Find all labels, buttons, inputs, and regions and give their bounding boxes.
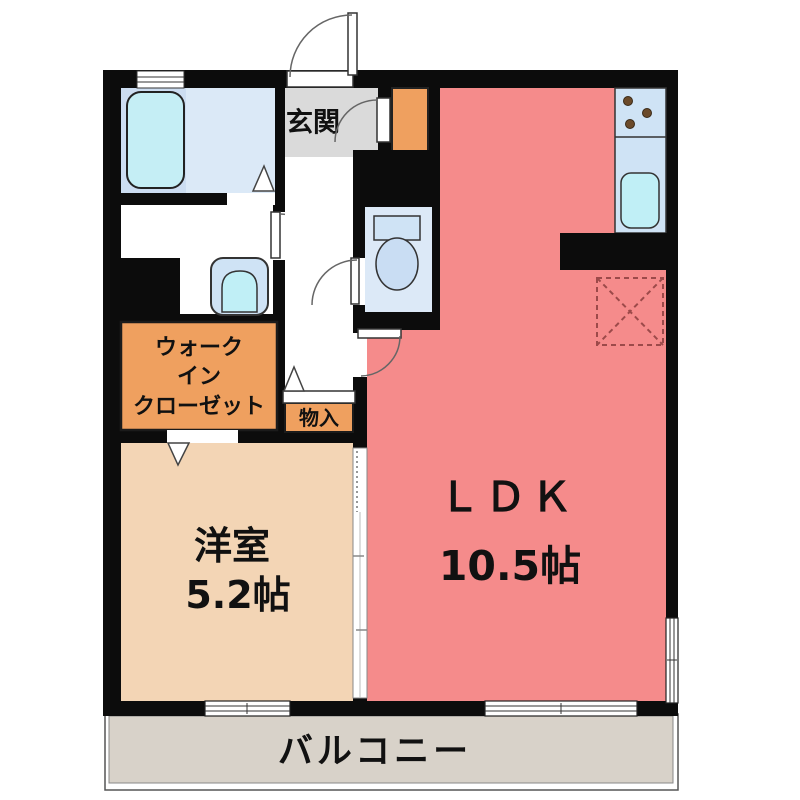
ldk-label: ＬＤＫ <box>439 473 577 521</box>
wic-doorway <box>167 430 238 443</box>
bedroom-window <box>205 701 290 716</box>
wic-label-line1: ウォーク <box>155 336 243 361</box>
toilet-door-icon <box>351 258 359 304</box>
ldk-doorway <box>353 333 367 377</box>
ldk-door-icon <box>358 329 401 338</box>
pipe-space <box>121 258 180 314</box>
ldk-window <box>485 701 637 716</box>
toilet-bowl-icon <box>376 238 418 290</box>
washbasin-bowl-icon <box>222 271 257 312</box>
storage-label: 物入 <box>299 406 339 430</box>
washroom-door-icon <box>271 212 280 258</box>
entrance-threshold <box>287 71 353 87</box>
entrance-door-icon <box>348 13 357 75</box>
kitchen-sink-icon <box>621 173 659 228</box>
stove-burner-icon <box>643 109 652 118</box>
kitchen-partition-wall <box>560 233 678 270</box>
floor-plan-page: バルコニー 玄関 ＬＤＫ 10.5帖 <box>0 0 800 800</box>
balcony-label: バルコニー <box>278 732 472 772</box>
stove-burner-icon <box>626 120 635 129</box>
bedroom-label: 洋室 <box>194 524 270 568</box>
floor-plan: バルコニー 玄関 ＬＤＫ 10.5帖 <box>0 0 800 800</box>
bedroom-size-label: 5.2帖 <box>185 573 290 617</box>
side-window <box>666 618 678 703</box>
bathtub-icon <box>127 92 184 188</box>
bedroom-floor <box>121 443 353 701</box>
toilet-tank-icon <box>374 216 420 240</box>
storage-door-icon <box>283 391 355 403</box>
genkan-label: 玄関 <box>286 107 340 139</box>
bathroom-doorway <box>227 193 275 205</box>
genkan-door-icon <box>377 98 390 142</box>
stove-burner-icon <box>624 97 633 106</box>
ldk-size-label: 10.5帖 <box>439 542 581 590</box>
wic-label-line3: クローゼット <box>133 395 265 420</box>
bathroom-window <box>137 71 184 88</box>
sliding-partition-icon <box>353 448 367 698</box>
wic-label-line2: イン <box>177 365 221 390</box>
shoe-cabinet-icon <box>392 88 428 152</box>
